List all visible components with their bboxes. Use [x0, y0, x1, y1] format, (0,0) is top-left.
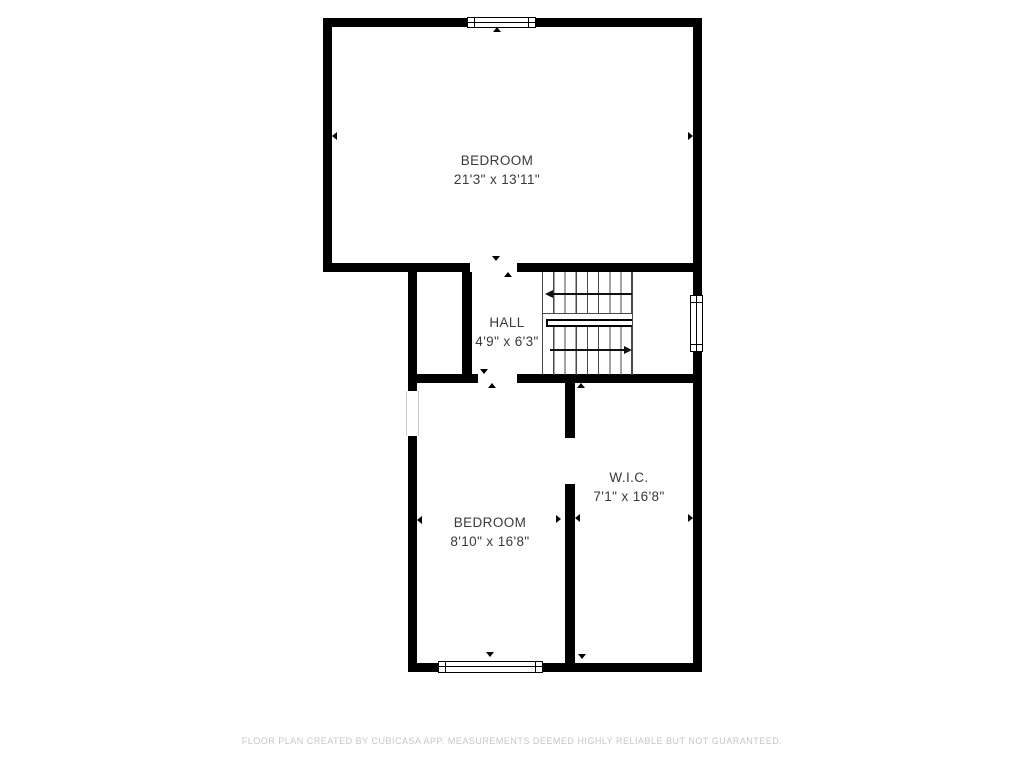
measure-arrow-down-icon [486, 652, 494, 657]
room-label-bedroom-lower: BEDROOM 8'10" x 16'8" [450, 513, 529, 551]
stair-direction-line [553, 293, 632, 295]
room-label-wic: W.I.C. 7'1" x 16'8" [593, 468, 664, 506]
stair-arrow-right-icon [624, 346, 632, 354]
measure-arrow-left-icon [417, 516, 422, 524]
window [438, 661, 543, 673]
measure-arrow-up-icon [488, 383, 496, 388]
window-mullion [535, 662, 536, 672]
floor-plan-canvas: BEDROOM 21'3" x 13'11" HALL 4'9" x 6'3" … [0, 0, 1024, 768]
measure-arrow-right-icon [556, 515, 561, 523]
wall [693, 18, 702, 295]
wall [565, 484, 575, 672]
window-mullion [691, 344, 702, 345]
window-mullion [528, 18, 529, 27]
stair-edge-line [632, 272, 633, 375]
wall [462, 272, 472, 374]
wall [417, 374, 478, 383]
wall [517, 374, 702, 383]
measure-arrow-up-icon [493, 27, 501, 32]
wall [408, 663, 438, 672]
stair-direction-line [550, 349, 626, 351]
stair-landing-line [542, 313, 633, 314]
room-dimensions: 4'9" x 6'3" [475, 332, 538, 351]
window-mullion [474, 18, 475, 27]
wall [543, 663, 702, 672]
room-dimensions: 8'10" x 16'8" [450, 532, 529, 551]
window [467, 17, 536, 28]
measure-arrow-up-icon [577, 383, 585, 388]
measure-arrow-left-icon [466, 292, 471, 300]
measure-arrow-down-icon [492, 256, 500, 261]
room-dimensions: 7'1" x 16'8" [593, 487, 664, 506]
room-name: W.I.C. [593, 468, 664, 487]
stair-edge-line [542, 272, 543, 375]
window-mullion [468, 22, 535, 23]
room-label-hall: HALL 4'9" x 6'3" [475, 313, 538, 351]
measure-arrow-right-icon [688, 514, 693, 522]
stair-flight-lower [542, 327, 632, 375]
wall [323, 263, 470, 272]
stair-railing [546, 319, 632, 327]
room-name: BEDROOM [454, 151, 540, 170]
room-dimensions: 21'3" x 13'11" [454, 170, 540, 189]
window-mullion [696, 296, 697, 351]
measure-arrow-down-icon [578, 654, 586, 659]
measure-arrow-down-icon [480, 369, 488, 374]
disclaimer-text: FLOOR PLAN CREATED BY CUBICASA APP. MEAS… [0, 736, 1024, 746]
wall [565, 383, 575, 438]
door-opening [406, 391, 419, 436]
wall [536, 18, 702, 27]
window-mullion [691, 302, 702, 303]
room-label-bedroom-upper: BEDROOM 21'3" x 13'11" [454, 151, 540, 189]
wall [408, 436, 417, 672]
wall [323, 18, 467, 27]
window [690, 295, 703, 352]
room-name: HALL [475, 313, 538, 332]
measure-arrow-left-icon [332, 132, 337, 140]
window-mullion [445, 662, 446, 672]
stair-arrow-left-icon [545, 290, 553, 298]
wall [408, 272, 417, 391]
wall [693, 352, 702, 672]
measure-arrow-right-icon [688, 132, 693, 140]
room-name: BEDROOM [450, 513, 529, 532]
measure-arrow-up-icon [504, 272, 512, 277]
wall [517, 263, 702, 272]
wall [323, 18, 332, 272]
window-mullion [439, 666, 542, 667]
measure-arrow-left-icon [575, 514, 580, 522]
